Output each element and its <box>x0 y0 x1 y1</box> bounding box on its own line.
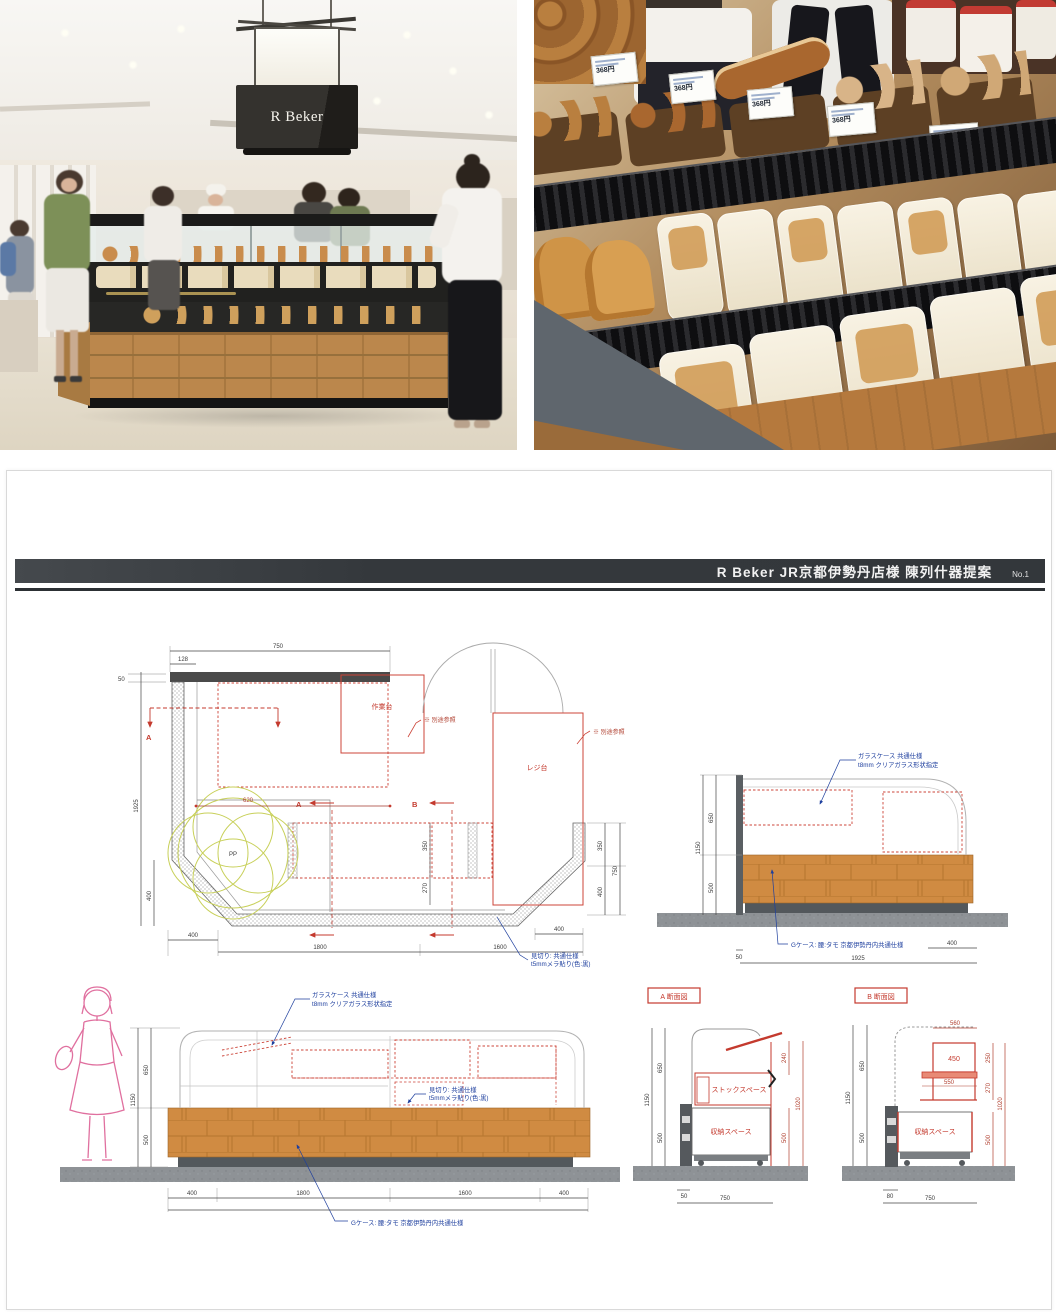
dim: 80 <box>887 1194 894 1200</box>
dim: 750 <box>720 1196 731 1202</box>
page: R Beker <box>0 0 1056 1312</box>
dim: 400 <box>187 1191 198 1197</box>
dim: 400 <box>188 933 199 939</box>
dim: 240 <box>782 1052 788 1063</box>
open-lid <box>726 1033 782 1050</box>
section-a-mark: A <box>146 733 152 742</box>
wood-base <box>168 1108 590 1157</box>
dim: 1020 <box>796 1097 802 1111</box>
dim: 350 <box>423 840 429 851</box>
dim: 270 <box>986 1082 992 1093</box>
case-outline-dashed <box>883 792 962 852</box>
note-cut: 見切り: 共通仕様 <box>429 1085 477 1094</box>
floor <box>842 1166 1015 1181</box>
dim: 750 <box>613 865 619 876</box>
dim: 620 <box>243 798 254 804</box>
case-outline-dashed <box>478 1046 556 1078</box>
wood-base <box>742 855 973 903</box>
pp-label: PP <box>229 852 237 858</box>
dim: 500 <box>782 1132 788 1143</box>
caster <box>904 1160 910 1166</box>
base-rail <box>900 1152 970 1159</box>
register-label: レジ台 <box>527 763 548 772</box>
door-arc <box>423 643 563 713</box>
floor <box>60 1167 620 1182</box>
glass-outline <box>743 787 958 855</box>
dim: 650 <box>709 812 715 823</box>
ref-note: ※ 別途参照 <box>593 728 625 736</box>
dim: 1800 <box>313 945 327 951</box>
dim: 128 <box>178 657 189 663</box>
dim: 400 <box>947 941 958 947</box>
base-rail <box>694 1155 768 1161</box>
dim: 500 <box>144 1134 150 1145</box>
dim: 500 <box>658 1132 664 1143</box>
case-outline-dashed <box>744 790 852 825</box>
ref-note: ※ 別途参照 <box>424 716 456 724</box>
dim: 1600 <box>493 945 507 951</box>
dim: 50 <box>736 955 743 961</box>
shelf-width-label: 450 <box>948 1056 960 1063</box>
plinth <box>745 903 968 913</box>
counter-band <box>172 682 585 926</box>
work-table-label: 作業台 <box>372 702 393 711</box>
section-b-title: B 断面図 <box>867 992 895 1001</box>
note-cut: t5mmメラ貼り(色:黒) <box>531 959 590 968</box>
dim: 1800 <box>296 1191 310 1197</box>
note-base: Gケース: 腰:タモ 京都伊勢丹内共通仕様 <box>791 940 904 949</box>
caster <box>757 1160 763 1166</box>
section-b-mark: B <box>412 800 418 809</box>
dim: 650 <box>860 1060 866 1071</box>
end-post <box>736 775 743 915</box>
dim: 1150 <box>846 1091 852 1105</box>
dim: 500 <box>986 1134 992 1145</box>
dim: 750 <box>925 1196 936 1202</box>
case-outline-dashed <box>292 1050 388 1078</box>
dim: 650 <box>144 1064 150 1075</box>
shelf-board <box>922 1072 977 1078</box>
side-elevation: ガラスケース 共通仕様 t8mm クリアガラス形状指定 Gケース: 腰:タモ 京… <box>657 751 1008 963</box>
note-glass: t8mm クリアガラス形状指定 <box>312 999 393 1008</box>
glass-outline <box>180 1031 584 1108</box>
dim: 500 <box>709 882 715 893</box>
plinth <box>178 1157 573 1167</box>
dim: 350 <box>598 840 604 851</box>
work-table-outline <box>341 675 424 753</box>
front-elevation: ガラスケース 共通仕様 t8mm クリアガラス形状指定 見切り: 共通仕様 t5… <box>52 987 620 1227</box>
dim: 250 <box>986 1052 992 1063</box>
dim: 400 <box>554 927 565 933</box>
section-a-title: A 断面図 <box>660 992 687 1001</box>
dim: 50 <box>681 1194 688 1200</box>
dim: 400 <box>147 890 153 901</box>
caster <box>959 1160 965 1166</box>
dim: 1150 <box>645 1093 651 1107</box>
dim: 1925 <box>134 799 140 813</box>
note-glass: ガラスケース 共通仕様 <box>312 990 377 999</box>
plan-view: PP 作業台 ※ 別途参照 レジ台 ※ 別途参照 A A B <box>118 643 626 968</box>
dim: 270 <box>423 882 429 893</box>
dim: 1150 <box>696 841 702 855</box>
stock-label: ストックスペース <box>712 1086 767 1094</box>
dim: 1150 <box>131 1093 137 1107</box>
storage-label: 収納スペース <box>914 1127 955 1136</box>
dim: 500 <box>860 1132 866 1143</box>
note-base: Gケース: 腰:タモ 京都伊勢丹内共通仕様 <box>351 1218 464 1227</box>
dim: 1020 <box>998 1097 1004 1111</box>
note-glass: ガラスケース 共通仕様 <box>858 751 923 760</box>
counter-inner-line <box>197 682 505 910</box>
case-outline-dashed <box>293 823 430 878</box>
note-glass: t8mm クリアガラス形状指定 <box>858 760 939 769</box>
storage-label: 収納スペース <box>710 1127 751 1136</box>
dim: 1925 <box>851 956 865 962</box>
dim: 560 <box>950 1021 961 1027</box>
wall-bar <box>170 672 390 682</box>
section-b: B 断面図 収納スペース 450 550 560 1150 <box>842 988 1015 1203</box>
dim: 400 <box>559 1191 570 1197</box>
dim: 50 <box>118 677 125 683</box>
dim: 400 <box>598 886 604 897</box>
dim: 750 <box>273 644 284 650</box>
person-scale-figure <box>52 987 124 1160</box>
note-cut: 見切り: 共通仕様 <box>531 951 579 960</box>
caster <box>698 1160 704 1166</box>
dim: 1600 <box>458 1191 472 1197</box>
drawings: PP 作業台 ※ 別途参照 レジ台 ※ 別途参照 A A B <box>0 0 1056 1312</box>
section-a: A 断面図 収納スペース ストックスペース 1150 650 500 240 <box>633 988 808 1203</box>
case-outline-dashed <box>395 1040 470 1078</box>
dim: 550 <box>944 1080 955 1086</box>
case-outline-dashed <box>218 683 388 787</box>
case-outline-dashed <box>432 823 492 878</box>
note-cut: t5mmメラ貼り(色:黒) <box>429 1093 488 1102</box>
glass-profile-dashed <box>895 1027 975 1106</box>
floor <box>633 1166 808 1181</box>
dim: 650 <box>658 1062 664 1073</box>
section-a-mark: A <box>296 800 302 809</box>
